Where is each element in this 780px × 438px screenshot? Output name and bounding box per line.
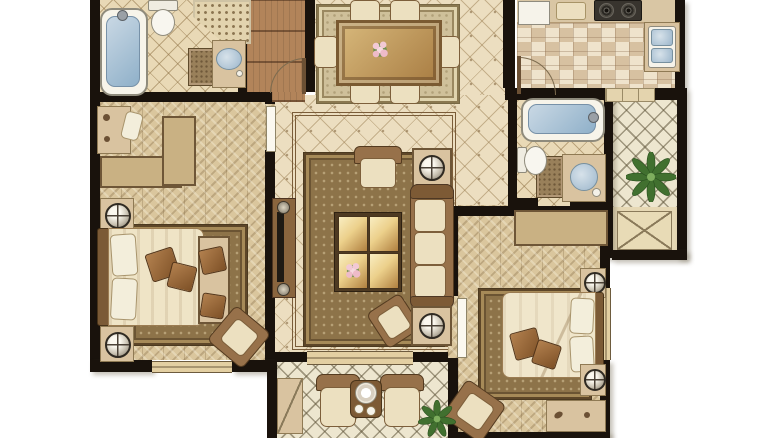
wall-utility-east (677, 88, 687, 258)
bedroom2-door-leaf (457, 298, 467, 358)
sofa-cushion-3 (414, 265, 446, 298)
bench-pillow-1 (198, 246, 228, 276)
master-pillow-1 (110, 233, 139, 277)
side-table-s-lamp (419, 313, 445, 339)
living-balcony-slider (307, 351, 413, 365)
living-armchair-n-seat (360, 158, 396, 188)
bedroom2-wardrobe (514, 210, 608, 246)
wall-living-bath2 (508, 88, 517, 206)
washbasin-2 (570, 163, 598, 191)
tea-plate (355, 382, 377, 404)
cooktop-burner-1 (599, 3, 614, 18)
master-window (152, 361, 232, 373)
bedroom2-lamp-n (584, 272, 606, 294)
bathtub-2-water (528, 104, 596, 134)
side-table-n-lamp (419, 155, 445, 181)
wall-living-balcony-a (275, 352, 307, 362)
plant-icon (414, 400, 460, 438)
sofa-cushion-1 (414, 199, 446, 232)
master-lamp-s (105, 332, 131, 358)
master-pillow-2 (110, 277, 138, 320)
washbasin-1 (216, 48, 242, 70)
bench-pillow-2 (199, 292, 226, 319)
kitchen-steps (605, 88, 655, 102)
bedroom2-desk-item-2 (584, 412, 590, 418)
sofa-cushion-2 (414, 232, 446, 265)
tv-speaker-1 (277, 201, 290, 214)
bedroom2-pillow-1 (569, 297, 595, 334)
bathtub-1-faucet (117, 10, 128, 21)
master-lamp-n (105, 203, 131, 229)
washbasin-2-soap (592, 188, 601, 197)
tea-cup-2 (366, 406, 376, 416)
tea-cup-1 (354, 404, 364, 414)
wall-kitchen-south-b (653, 88, 685, 100)
balcony-cabinet (277, 378, 303, 434)
wall-entry-south (238, 92, 272, 102)
dining-flower-centerpiece (370, 40, 390, 60)
entry-door-opening (272, 92, 305, 102)
coffee-table-panel-1 (338, 216, 368, 252)
cutting-board (556, 2, 586, 20)
bathtub-2-faucet (588, 112, 599, 123)
entry-door-leaf (302, 58, 306, 94)
kitchen-sink-basin-1 (651, 29, 673, 46)
refrigerator (518, 1, 550, 25)
bedroom2-lamp-s (584, 369, 606, 391)
washbasin-1-soap (236, 70, 243, 77)
wall-balcony-west (267, 362, 277, 438)
floor-plan (0, 0, 780, 438)
coffee-table-panel-4 (369, 253, 399, 289)
coffee-table-flowers (344, 262, 362, 280)
tv-speaker-2 (277, 283, 290, 296)
wall-utility-south (612, 250, 687, 260)
coffee-table-panel-2 (369, 216, 399, 252)
bathtub-1-water (106, 16, 140, 87)
cooktop-burner-2 (621, 3, 636, 18)
wall-dining-kitchen (503, 0, 515, 88)
utility-platform (617, 211, 672, 250)
kitchen-door-leaf (517, 56, 521, 94)
master-desk-item-1 (103, 114, 110, 121)
sofa-armrest-n (410, 184, 454, 199)
kitchen-sink-basin-2 (651, 48, 673, 63)
master-door-leaf (266, 106, 276, 152)
tv-screen (277, 212, 284, 282)
plant-icon (626, 152, 676, 202)
toilet-1-bowl (151, 9, 175, 36)
master-wardrobe-v (162, 116, 196, 186)
toilet-2-bowl (524, 146, 547, 175)
dining-chair-w (314, 36, 338, 68)
master-desk-item-2 (104, 136, 110, 142)
